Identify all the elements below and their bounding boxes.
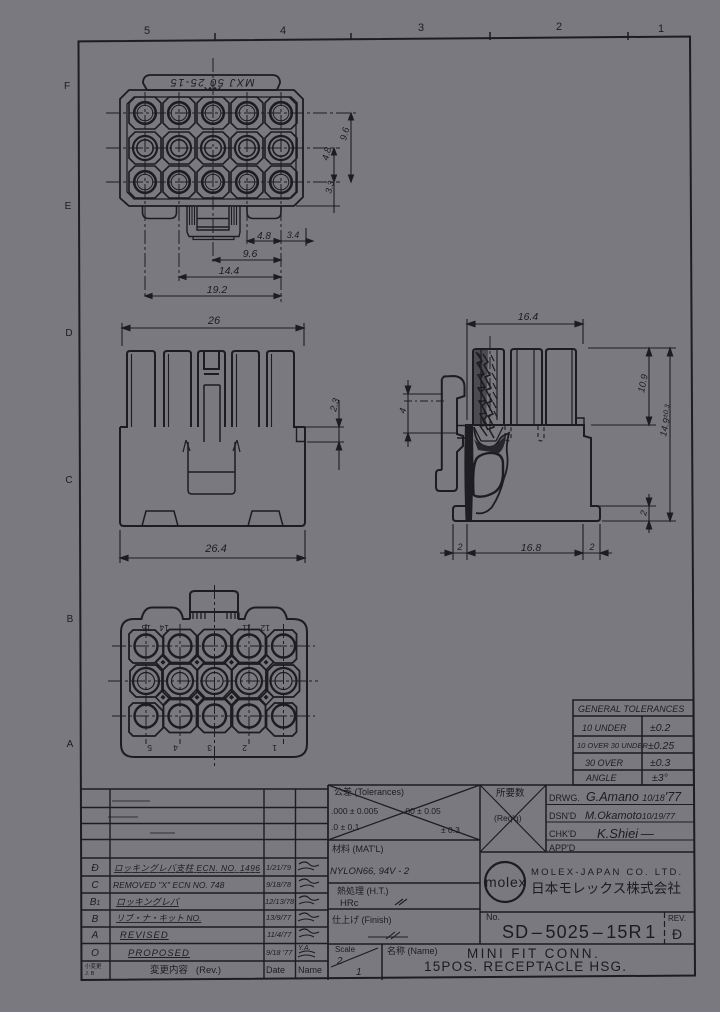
svg-text:2: 2: [588, 542, 594, 552]
svg-text:REVISED: REVISED: [120, 930, 169, 941]
svg-text:±0.25: ±0.25: [648, 740, 674, 752]
svg-text:公差 (Tolerances): 公差 (Tolerances): [334, 786, 404, 797]
svg-text:14.4: 14.4: [219, 265, 240, 277]
svg-text:9/18/78: 9/18/78: [266, 880, 292, 889]
svg-text:リブ・ナ・キット NO.: リブ・ナ・キット NO.: [116, 913, 201, 923]
svg-text:DSN'D: DSN'D: [549, 811, 577, 821]
svg-text:小変更: 小変更: [85, 962, 102, 970]
svg-text:M.Okamoto10/19/77: M.Okamoto10/19/77: [585, 810, 675, 822]
svg-text:11: 11: [242, 623, 251, 633]
svg-text:±0.3: ±0.3: [650, 757, 671, 769]
svg-text:A: A: [67, 739, 74, 750]
svg-text:10 OVER 30 UNDER: 10 OVER 30 UNDER: [577, 741, 648, 750]
svg-text:molex: molex: [485, 874, 526, 890]
svg-text:3: 3: [207, 743, 212, 753]
svg-text:13/9/77: 13/9/77: [266, 913, 292, 922]
svg-text:1: 1: [272, 743, 277, 753]
svg-text:F: F: [64, 81, 70, 92]
svg-text:2: 2: [242, 743, 247, 753]
svg-text:4: 4: [173, 743, 178, 753]
svg-text:CHK'D: CHK'D: [549, 829, 577, 839]
svg-text:B: B: [67, 614, 74, 625]
svg-text:2: 2: [456, 542, 462, 552]
svg-text:HRc: HRc: [340, 898, 359, 909]
svg-text:±0.2: ±0.2: [650, 722, 671, 734]
svg-text:ロッキングレバ: ロッキングレバ: [116, 897, 181, 907]
svg-text:3.4: 3.4: [287, 230, 300, 240]
svg-text:PROPOSED: PROPOSED: [128, 948, 190, 959]
svg-text:No.: No.: [486, 912, 500, 922]
svg-text:± 0.3: ± 0.3: [441, 825, 460, 835]
svg-text:15POS. RECEPTACLE HSG.: 15POS. RECEPTACLE HSG.: [424, 959, 627, 974]
svg-text:REV.: REV.: [668, 914, 686, 923]
svg-text:4: 4: [280, 25, 286, 37]
svg-text:Ð: Ð: [91, 863, 98, 874]
svg-text:2: 2: [336, 956, 343, 967]
svg-text:名称 (Name): 名称 (Name): [387, 945, 438, 956]
svg-text:変更内容 (Rev.): 変更内容 (Rev.): [150, 964, 221, 976]
svg-text:熱処理 (H.T.): 熱処理 (H.T.): [337, 885, 389, 896]
svg-text:4.8: 4.8: [257, 231, 271, 242]
svg-text:5: 5: [144, 25, 150, 37]
svg-text:1/21/79: 1/21/79: [266, 863, 292, 872]
svg-text:2: 2: [556, 21, 562, 33]
svg-text:G.Amano 10/18'77: G.Amano 10/18'77: [586, 790, 682, 804]
svg-text:ロッキングレバ支柱 ECN. NO. 1496: ロッキングレバ支柱 ECN. NO. 1496: [114, 863, 260, 873]
svg-text:12/13/78: 12/13/78: [265, 897, 295, 906]
svg-text:A: A: [91, 930, 99, 941]
svg-text:.0 ± 0.1: .0 ± 0.1: [331, 822, 360, 832]
svg-text:.00 ± 0.05: .00 ± 0.05: [403, 806, 441, 816]
svg-text:16.4: 16.4: [518, 311, 539, 323]
svg-text:DRWG.: DRWG.: [549, 793, 580, 803]
svg-text:Name: Name: [298, 965, 322, 975]
svg-text:仕上げ (Finish): 仕上げ (Finish): [332, 914, 392, 925]
svg-text:16.8: 16.8: [521, 542, 542, 554]
svg-text:J. B: J. B: [85, 971, 95, 977]
svg-text:±3°: ±3°: [652, 772, 668, 784]
svg-text:O: O: [91, 948, 99, 959]
svg-text:REMOVED "X" ECN NO. 748: REMOVED "X" ECN NO. 748: [113, 880, 225, 890]
svg-text:Đ: Đ: [672, 926, 682, 942]
svg-text:11/4/77: 11/4/77: [267, 930, 292, 939]
svg-text:K.Shiei —: K.Shiei —: [597, 826, 655, 841]
svg-text:3: 3: [418, 22, 424, 34]
svg-text:ANGLE: ANGLE: [585, 773, 618, 783]
svg-text:SD – 5025 – 15R 1: SD – 5025 – 15R 1: [502, 922, 656, 942]
svg-text:D: D: [65, 328, 72, 339]
svg-text:NYLON66, 94V - 2: NYLON66, 94V - 2: [330, 866, 410, 877]
svg-text:日本モレックス株式会社: 日本モレックス株式会社: [531, 881, 681, 896]
svg-text:B: B: [92, 914, 99, 925]
svg-text:C: C: [91, 880, 99, 891]
svg-text:APP'D: APP'D: [549, 843, 576, 853]
svg-text:9/18 '77: 9/18 '77: [266, 948, 293, 957]
svg-text:10 UNDER: 10 UNDER: [582, 723, 627, 733]
svg-text:MXJ 50 25-15: MXJ 50 25-15: [169, 76, 254, 88]
svg-text:1: 1: [356, 967, 362, 978]
svg-text:1: 1: [658, 23, 664, 35]
svg-text:MOLEX-JAPAN CO. LTD.: MOLEX-JAPAN CO. LTD.: [531, 867, 683, 878]
svg-text:材料 (MAT'L): 材料 (MAT'L): [332, 843, 384, 854]
svg-text:30 OVER: 30 OVER: [585, 758, 624, 768]
svg-text:.000 ± 0.005: .000 ± 0.005: [331, 806, 378, 816]
svg-text:19.2: 19.2: [207, 284, 228, 296]
svg-text:C: C: [65, 475, 72, 486]
svg-text:GENERAL TOLERANCES: GENERAL TOLERANCES: [578, 704, 684, 714]
svg-text:5: 5: [147, 743, 152, 753]
svg-text:26.4: 26.4: [204, 543, 226, 555]
svg-text:(Req'q): (Req'q): [494, 813, 522, 823]
svg-text:Date: Date: [266, 965, 285, 975]
svg-text:E: E: [65, 201, 72, 212]
svg-text:9.6: 9.6: [243, 248, 258, 260]
svg-text:Scale: Scale: [335, 945, 356, 954]
svg-text:所要数: 所要数: [496, 787, 525, 799]
svg-text:26: 26: [207, 315, 221, 327]
